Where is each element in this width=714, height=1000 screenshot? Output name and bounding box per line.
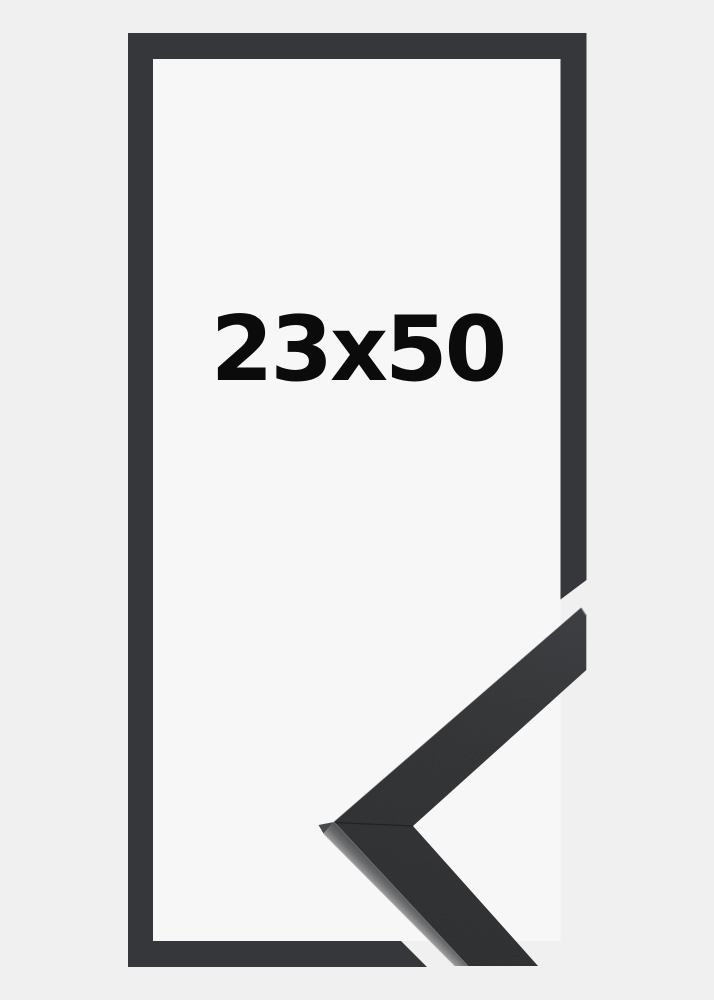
- frame-product-graphic: 23x50: [0, 0, 714, 1000]
- product-image: 23x50: [0, 0, 714, 1000]
- size-label: 23x50: [211, 297, 505, 402]
